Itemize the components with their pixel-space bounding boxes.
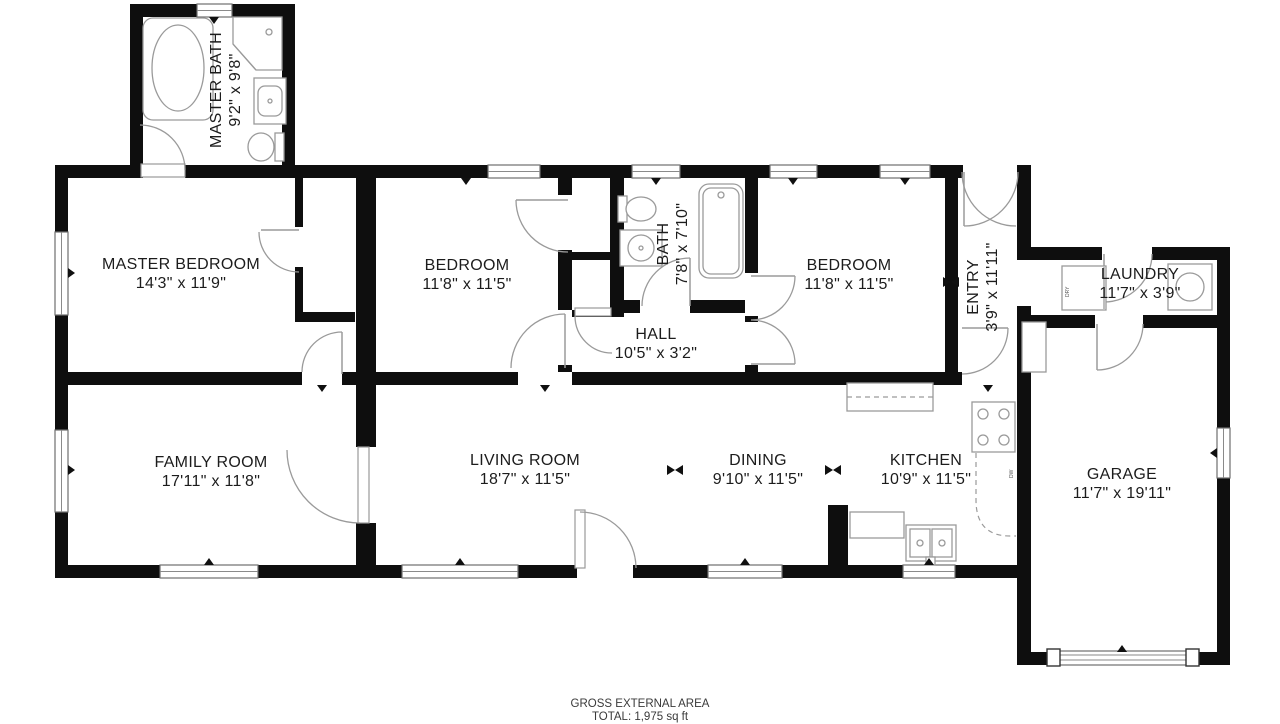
room-name: BATH bbox=[654, 203, 673, 285]
room-dims: 14'3" x 11'9" bbox=[102, 274, 260, 293]
window bbox=[770, 165, 817, 178]
tick-icon bbox=[825, 465, 833, 475]
room-name: LAUNDRY bbox=[1099, 265, 1180, 284]
master-closet-door bbox=[259, 230, 299, 272]
room-dims: 11'7" x 19'11" bbox=[1073, 484, 1171, 503]
room-label-master-bath: MASTER BATH9'2" x 9'8" bbox=[207, 32, 245, 148]
tick-icon bbox=[651, 178, 661, 185]
room-label-bath: BATH7'8" x 7'10" bbox=[654, 203, 692, 285]
dryer-label: DRY bbox=[1065, 286, 1071, 297]
window bbox=[880, 165, 930, 178]
kitchen-sink-icon bbox=[850, 512, 956, 565]
area-summary-title: GROSS EXTERNAL AREA bbox=[0, 698, 1280, 711]
area-summary-total: TOTAL: 1,975 sq ft bbox=[0, 711, 1280, 724]
room-label-hall: HALL10'5" x 3'2" bbox=[615, 325, 697, 363]
room-dims: 9'10" x 11'5" bbox=[713, 470, 803, 489]
room-dims: 3'9" x 11'11" bbox=[983, 242, 1002, 331]
room-label-kitchen: KITCHEN10'9" x 11'5" bbox=[881, 451, 971, 489]
room-dims: 11'7" x 3'9" bbox=[1099, 284, 1180, 303]
living-room-back-door bbox=[575, 510, 636, 568]
front-door bbox=[962, 172, 1018, 226]
tick-icon bbox=[983, 385, 993, 392]
room-dims: 10'5" x 3'2" bbox=[615, 344, 697, 363]
mechanical-closet bbox=[1022, 322, 1046, 372]
tick-icon bbox=[675, 465, 683, 475]
window bbox=[160, 565, 258, 578]
room-label-laundry: LAUNDRY11'7" x 3'9" bbox=[1099, 265, 1180, 303]
window bbox=[632, 165, 680, 178]
window bbox=[402, 565, 518, 578]
window bbox=[1217, 428, 1230, 478]
window bbox=[488, 165, 540, 178]
room-dims: 7'8" x 7'10" bbox=[673, 203, 692, 285]
room-dims: 11'8" x 11'5" bbox=[422, 275, 511, 294]
tick-icon bbox=[317, 385, 327, 392]
room-name: GARAGE bbox=[1073, 465, 1171, 484]
bathtub-icon bbox=[143, 18, 213, 120]
bedroom-right-door bbox=[751, 276, 795, 320]
bedroom-right-closet-door bbox=[751, 320, 795, 364]
toilet-icon bbox=[618, 196, 656, 222]
dishwasher-label: DW bbox=[1009, 469, 1015, 478]
tick-icon bbox=[1210, 448, 1217, 458]
tick-icon bbox=[68, 268, 75, 278]
vanity-sink-icon bbox=[254, 78, 286, 124]
area-summary: GROSS EXTERNAL AREA TOTAL: 1,975 sq ft bbox=[0, 698, 1280, 724]
toilet-icon bbox=[248, 133, 284, 161]
tick-icon bbox=[540, 385, 550, 392]
kitchen-counter-edge bbox=[976, 453, 1016, 536]
room-name: LIVING ROOM bbox=[470, 451, 580, 470]
room-name: DINING bbox=[713, 451, 803, 470]
entry-kitchen-door bbox=[962, 328, 1008, 374]
room-name: ENTRY bbox=[964, 242, 983, 331]
bedroom-left-door bbox=[511, 314, 565, 368]
room-name: MASTER BATH bbox=[207, 32, 226, 148]
bedroom-closet-door bbox=[516, 200, 568, 252]
bathtub-icon bbox=[699, 184, 743, 278]
room-label-bedroom-right: BEDROOM11'8" x 11'5" bbox=[804, 256, 893, 294]
room-name: MASTER BEDROOM bbox=[102, 255, 260, 274]
master-bath-door bbox=[140, 125, 185, 177]
window bbox=[197, 4, 232, 17]
room-label-family-room: FAMILY ROOM17'11" x 11'8" bbox=[155, 453, 268, 491]
master-bedroom-door bbox=[302, 332, 342, 374]
window bbox=[55, 232, 68, 315]
window bbox=[55, 430, 68, 512]
floor-plan: DRY DW MASTER BATH9'2" x 9 bbox=[0, 0, 1280, 720]
room-label-dining: DINING9'10" x 11'5" bbox=[713, 451, 803, 489]
tick-icon bbox=[833, 465, 841, 475]
room-dims: 18'7" x 11'5" bbox=[470, 470, 580, 489]
tick-icon bbox=[740, 558, 750, 565]
tick-icon bbox=[900, 178, 910, 185]
fixtures: DRY DW bbox=[143, 17, 1212, 565]
room-name: BEDROOM bbox=[804, 256, 893, 275]
laundry-garage-door bbox=[1097, 324, 1143, 370]
kitchen-peninsula bbox=[847, 383, 933, 411]
room-name: FAMILY ROOM bbox=[155, 453, 268, 472]
room-label-master-bedroom: MASTER BEDROOM14'3" x 11'9" bbox=[102, 255, 260, 293]
tick-icon bbox=[68, 465, 75, 475]
stove-icon bbox=[972, 402, 1015, 452]
room-name: BEDROOM bbox=[422, 256, 511, 275]
room-name: KITCHEN bbox=[881, 451, 971, 470]
room-label-entry: ENTRY3'9" x 11'11" bbox=[964, 242, 1002, 331]
room-dims: 10'9" x 11'5" bbox=[881, 470, 971, 489]
family-room-door bbox=[287, 447, 369, 523]
window bbox=[903, 565, 955, 578]
room-label-living-room: LIVING ROOM18'7" x 11'5" bbox=[470, 451, 580, 489]
room-label-garage: GARAGE11'7" x 19'11" bbox=[1073, 465, 1171, 503]
tick-icon bbox=[455, 558, 465, 565]
room-dims: 11'8" x 11'5" bbox=[804, 275, 893, 294]
tick-icon bbox=[204, 558, 214, 565]
room-dims: 17'11" x 11'8" bbox=[155, 472, 268, 491]
room-dims: 9'2" x 9'8" bbox=[226, 32, 245, 148]
tick-icon bbox=[788, 178, 798, 185]
window bbox=[708, 565, 782, 578]
tick-icon bbox=[461, 178, 471, 185]
tick-icon bbox=[667, 465, 675, 475]
room-name: HALL bbox=[615, 325, 697, 344]
bedroom-closet-door-2 bbox=[575, 308, 612, 353]
room-label-bedroom-left: BEDROOM11'8" x 11'5" bbox=[422, 256, 511, 294]
tick-icon bbox=[1117, 645, 1127, 652]
